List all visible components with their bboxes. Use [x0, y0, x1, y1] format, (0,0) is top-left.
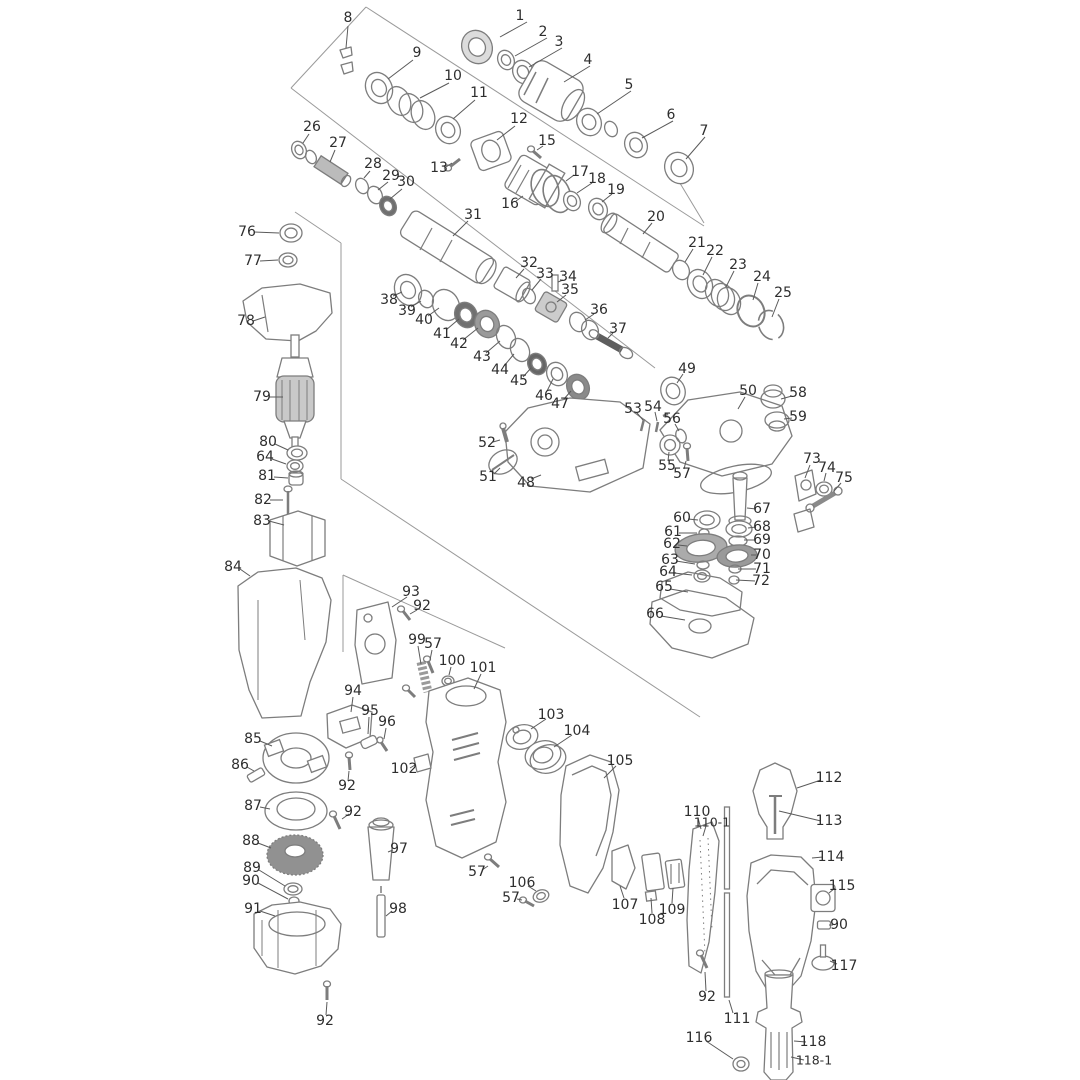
part-number-label: 42: [450, 336, 468, 352]
part-number-label: 80: [259, 434, 277, 450]
part-number-label: 57: [502, 890, 520, 906]
leader-line: [418, 646, 421, 664]
part-number-label: 17: [571, 164, 589, 180]
part-shape: [403, 611, 410, 620]
part-number-label: 3: [555, 34, 564, 50]
part-number-label: 8: [344, 10, 353, 26]
part-shape: [656, 422, 658, 432]
part-number-label: 112: [816, 770, 843, 786]
part-number-label: 97: [390, 841, 408, 857]
part-number-label: 23: [729, 257, 747, 273]
part-number-label: 24: [753, 269, 771, 285]
part-number-label: 98: [389, 901, 407, 917]
part-number-label: 81: [258, 468, 276, 484]
part-shape: [408, 690, 415, 697]
part-number-label: 16: [501, 196, 519, 212]
part-shape: [238, 568, 331, 718]
part-number-label: 43: [473, 349, 491, 365]
part-number-label: 101: [470, 660, 497, 676]
part-shape: [747, 855, 816, 993]
part-number-label: 26: [303, 119, 321, 135]
part-number-label: 104: [564, 723, 591, 739]
part-number-label: 79: [253, 389, 271, 405]
part-shape: [725, 893, 730, 997]
part-number-label: 12: [510, 111, 528, 127]
leader-line: [330, 150, 335, 162]
part-shape: [689, 619, 711, 633]
leader-line: [346, 26, 348, 48]
part-number-label: 84: [224, 559, 242, 575]
part-number-label: 39: [398, 303, 416, 319]
part-number-label: 92: [698, 989, 716, 1005]
part-number-label: 58: [789, 385, 807, 401]
part-number-label: 118: [800, 1034, 827, 1050]
part-number-label: 20: [647, 209, 665, 225]
part-number-label: 48: [517, 475, 535, 491]
part-shape: [426, 678, 506, 858]
part-number-label: 62: [663, 536, 681, 552]
part-shape: [733, 1057, 749, 1071]
part-shape: [795, 470, 816, 501]
part-number-label: 6: [667, 107, 676, 123]
part-number-label: 118-1: [796, 1053, 832, 1068]
frame-line: [291, 7, 366, 88]
part-number-label: 10: [444, 68, 462, 84]
part-number-label: 116: [686, 1030, 713, 1046]
leader-line: [420, 83, 449, 98]
part-number-label: 83: [253, 513, 271, 529]
part-number-label: 52: [478, 435, 496, 451]
part-shape: [247, 767, 266, 782]
leader-line: [453, 100, 475, 119]
part-shape: [533, 151, 541, 158]
exploded-parts-diagram: 1234567891011121315161718192021222324252…: [0, 0, 1080, 1080]
part-number-label: 27: [329, 135, 347, 151]
part-number-label: 11: [470, 85, 488, 101]
part-number-label: 100: [439, 653, 466, 669]
part-shape: [428, 661, 433, 673]
part-number-label: 115: [829, 878, 856, 894]
part-number-label: 67: [753, 501, 771, 517]
part-shape: [470, 130, 513, 172]
leader-line: [661, 616, 685, 620]
part-shape: [834, 487, 842, 495]
part-number-label: 69: [753, 532, 771, 548]
part-shape: [291, 335, 299, 357]
leader-line: [275, 444, 288, 450]
part-number-label: 41: [433, 326, 451, 342]
part-shape: [349, 757, 350, 770]
leader-line: [364, 171, 370, 178]
part-number-label: 74: [818, 460, 836, 476]
part-shape: [283, 256, 293, 264]
part-number-label: 87: [244, 798, 262, 814]
part-number-label: 77: [244, 253, 262, 269]
part-shape: [528, 146, 535, 152]
part-shape: [277, 358, 313, 377]
part-shape: [820, 485, 829, 493]
part-shape: [597, 336, 622, 350]
part-number-label: 2: [539, 24, 548, 40]
leader-line: [260, 260, 278, 261]
part-number-label: 33: [536, 266, 554, 282]
part-number-label: 86: [231, 757, 249, 773]
part-shape: [355, 602, 396, 684]
part-number-label: 47: [551, 396, 569, 412]
part-number-label: 92: [338, 778, 356, 794]
part-number-label: 92: [413, 598, 431, 614]
part-shape: [377, 895, 385, 937]
part-number-label: 59: [789, 409, 807, 425]
leader-line: [390, 189, 402, 199]
part-number-label: 40: [415, 312, 433, 328]
part-shape: [285, 845, 305, 857]
part-shape: [687, 448, 688, 461]
part-number-label: 64: [659, 564, 677, 580]
part-number-label: 72: [752, 573, 770, 589]
part-number-label: 38: [380, 292, 398, 308]
part-number-label: 15: [538, 133, 556, 149]
part-shape: [567, 310, 590, 335]
part-number-label: 25: [774, 285, 792, 301]
part-shape: [818, 921, 831, 929]
part-shape: [700, 515, 714, 525]
part-number-label: 76: [238, 224, 256, 240]
part-shape: [307, 756, 326, 773]
part-number-label: 1: [516, 8, 525, 24]
part-number-label: 111: [724, 1011, 751, 1027]
part-number-label: 4: [584, 52, 593, 68]
part-shape: [341, 62, 353, 74]
part-shape: [560, 755, 619, 893]
part-shape: [665, 859, 685, 889]
leader-line: [453, 221, 468, 236]
part-number-label: 109: [659, 902, 686, 918]
part-shape: [525, 901, 534, 906]
leader-line: [672, 888, 673, 903]
leader-line: [642, 121, 673, 138]
part-number-label: 117: [831, 958, 858, 974]
part-number-label: 96: [378, 714, 396, 730]
part-number-label: 106: [509, 875, 536, 891]
part-number-label: 9: [413, 45, 422, 61]
part-number-label: 92: [316, 1013, 334, 1029]
leader-line: [726, 271, 734, 287]
part-number-label: 88: [242, 833, 260, 849]
part-shape: [612, 845, 635, 889]
part-number-label: 103: [538, 707, 565, 723]
leader-line: [272, 459, 286, 464]
part-number-label: 28: [364, 156, 382, 172]
part-shape: [292, 449, 303, 457]
part-number-label: 93: [402, 584, 420, 600]
part-shape: [642, 853, 665, 891]
leader-line: [772, 299, 779, 317]
part-shape: [445, 678, 452, 684]
part-number-label: 50: [739, 383, 757, 399]
part-number-label: 75: [835, 470, 853, 486]
part-shape: [270, 511, 325, 566]
part-number-label: 21: [688, 235, 706, 251]
part-number-label: 7: [700, 123, 709, 139]
part-shape: [254, 902, 341, 974]
part-shape: [285, 228, 297, 238]
part-shape: [737, 1061, 745, 1068]
part-number-label: 85: [244, 731, 262, 747]
leader-line: [388, 60, 413, 79]
leader-line: [254, 232, 279, 233]
part-number-label: 54: [644, 399, 662, 415]
part-number-label: 64: [256, 449, 274, 465]
part-number-label: 95: [361, 703, 379, 719]
part-number-label: 13: [430, 160, 448, 176]
part-number-label: 53: [624, 401, 642, 417]
part-number-label: 44: [491, 362, 509, 378]
leader-line: [515, 38, 547, 56]
leader-line: [703, 257, 712, 275]
part-shape: [490, 859, 499, 867]
leader-line: [274, 477, 288, 478]
part-shape: [277, 798, 315, 820]
part-number-label: 82: [254, 492, 272, 508]
part-shape: [665, 440, 676, 451]
part-number-label: 90: [830, 917, 848, 933]
part-number-label: 113: [816, 813, 843, 829]
part-number-label: 92: [344, 804, 362, 820]
part-shape: [288, 886, 298, 893]
part-shape: [289, 473, 303, 485]
leader-line: [597, 91, 631, 114]
part-number-label: 57: [673, 466, 691, 482]
part-number-label: 51: [479, 469, 497, 485]
part-number-label: 37: [609, 321, 627, 337]
part-shape: [421, 662, 428, 692]
part-shape: [660, 392, 792, 476]
part-number-label: 30: [397, 174, 415, 190]
leader-line: [500, 22, 527, 37]
part-shape: [264, 740, 283, 757]
part-number-label: 66: [646, 606, 664, 622]
part-number-label: 19: [607, 182, 625, 198]
part-shape: [381, 742, 387, 751]
part-shape: [821, 945, 826, 957]
part-shape: [602, 119, 620, 139]
part-shape: [732, 525, 746, 534]
leader-line: [258, 843, 271, 848]
part-number-label: 91: [244, 901, 262, 917]
part-number-label: 105: [607, 753, 634, 769]
part-number-label: 102: [391, 761, 418, 777]
frame-line: [295, 212, 341, 243]
part-number-label: 107: [612, 897, 639, 913]
leader-line: [259, 870, 285, 886]
part-number-label: 5: [625, 77, 634, 93]
part-shape: [451, 159, 460, 166]
part-shape: [334, 816, 340, 829]
part-number-label: 65: [655, 579, 673, 595]
part-shape: [602, 213, 679, 274]
part-number-label: 31: [464, 207, 482, 223]
part-number-label: 49: [678, 361, 696, 377]
part-number-label: 110-1: [694, 815, 730, 830]
part-number-label: 57: [468, 864, 486, 880]
part-shape: [291, 463, 300, 470]
leader-line: [686, 137, 705, 159]
part-number-label: 45: [510, 373, 528, 389]
part-shape: [373, 818, 389, 826]
part-shape: [284, 421, 306, 438]
part-number-label: 36: [590, 302, 608, 318]
part-number-label: 114: [818, 849, 845, 865]
part-shape: [733, 478, 747, 520]
part-number-label: 35: [561, 282, 579, 298]
part-shape: [243, 284, 332, 341]
part-number-label: 56: [663, 411, 681, 427]
part-shape: [650, 590, 754, 658]
part-number-label: 18: [588, 171, 606, 187]
part-number-label: 94: [344, 683, 362, 699]
part-number-label: 22: [706, 243, 724, 259]
part-shape: [340, 47, 352, 58]
parts-diagram-page: 1234567891011121315161718192021222324252…: [0, 0, 1080, 1080]
part-shape: [281, 748, 311, 768]
part-number-label: 90: [242, 873, 260, 889]
leader-line: [303, 134, 309, 143]
part-number-label: 78: [237, 313, 255, 329]
part-number-label: 57: [424, 636, 442, 652]
